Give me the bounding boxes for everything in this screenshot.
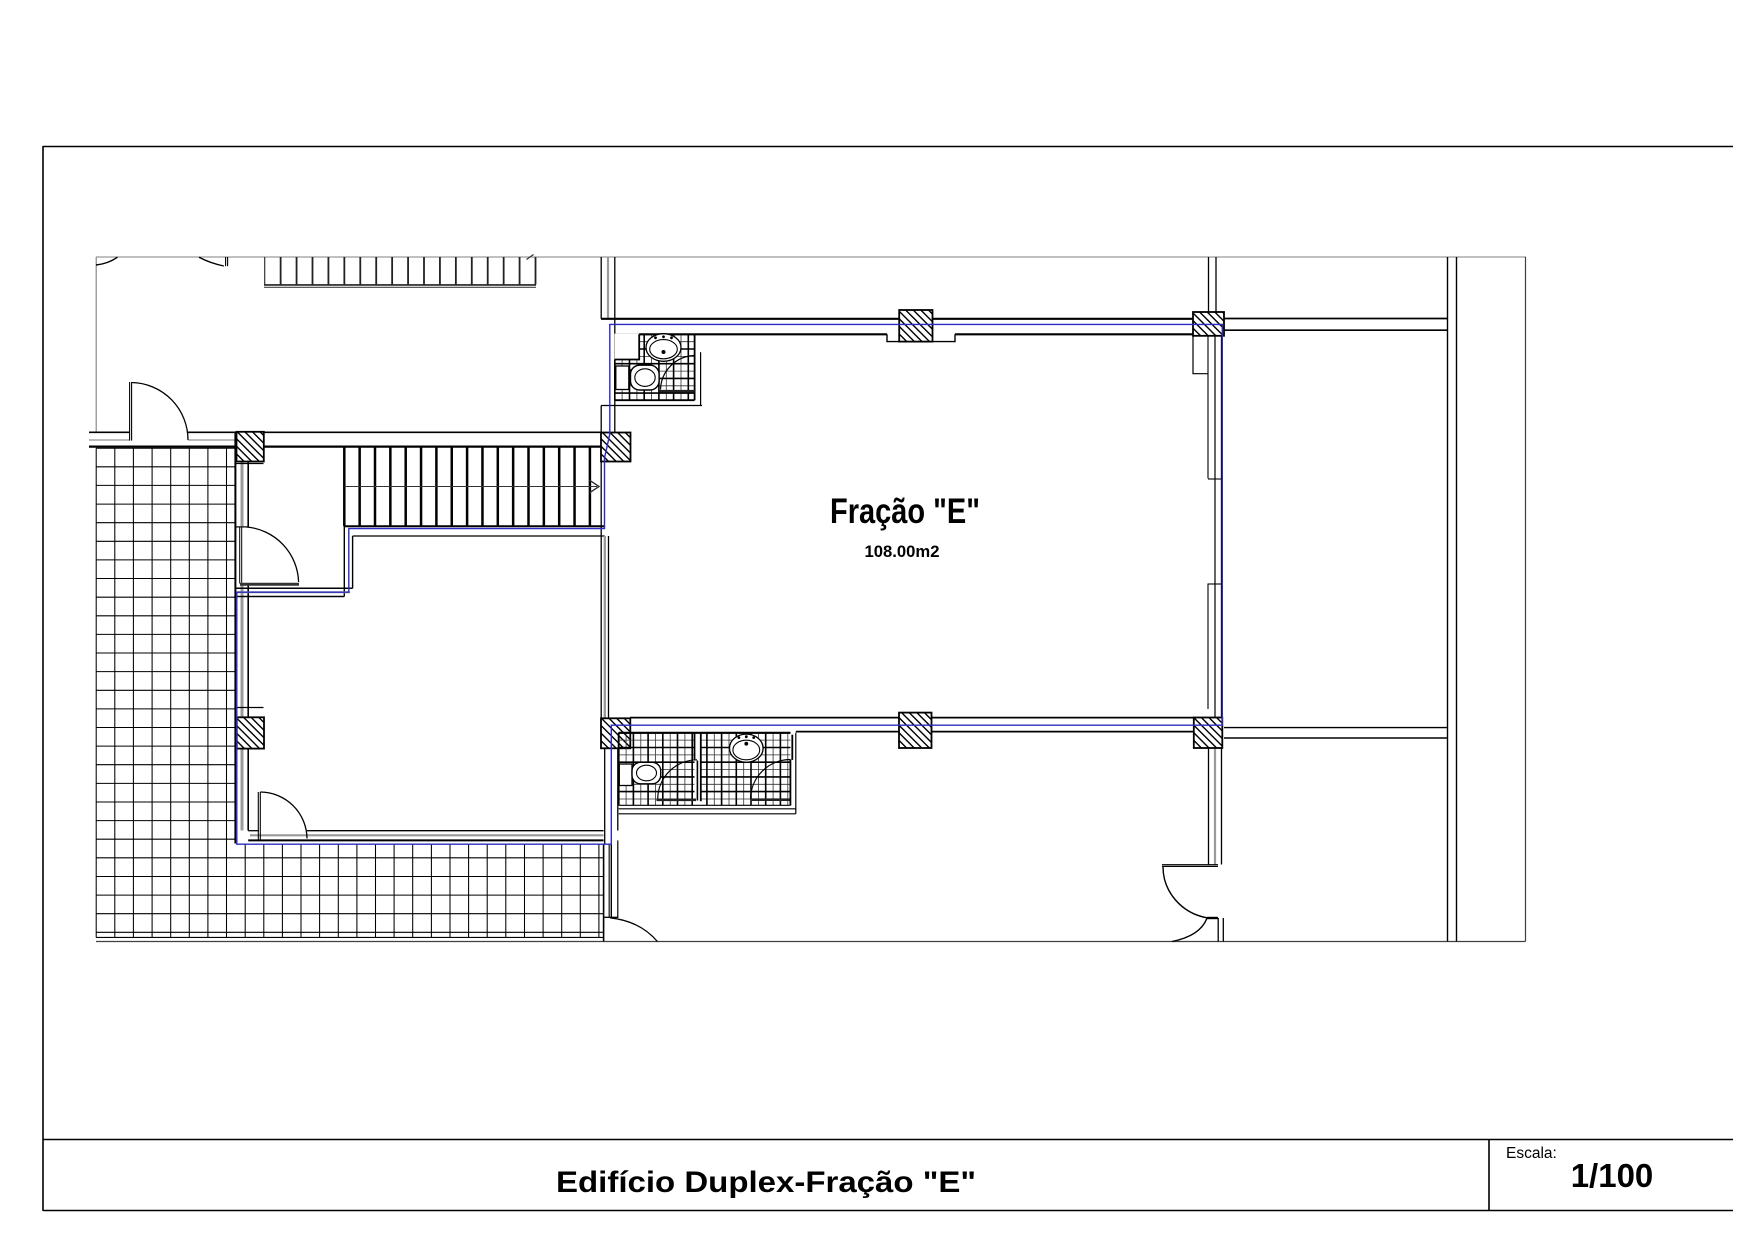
svg-text:Edifício Duplex-Fração "E": Edifício Duplex-Fração "E" [556,1166,976,1199]
svg-text:1/100: 1/100 [1571,1157,1654,1194]
svg-text:Escala:: Escala: [1506,1145,1557,1162]
svg-text:Fração "E": Fração "E" [830,492,980,531]
svg-text:108.00m2: 108.00m2 [865,542,940,561]
